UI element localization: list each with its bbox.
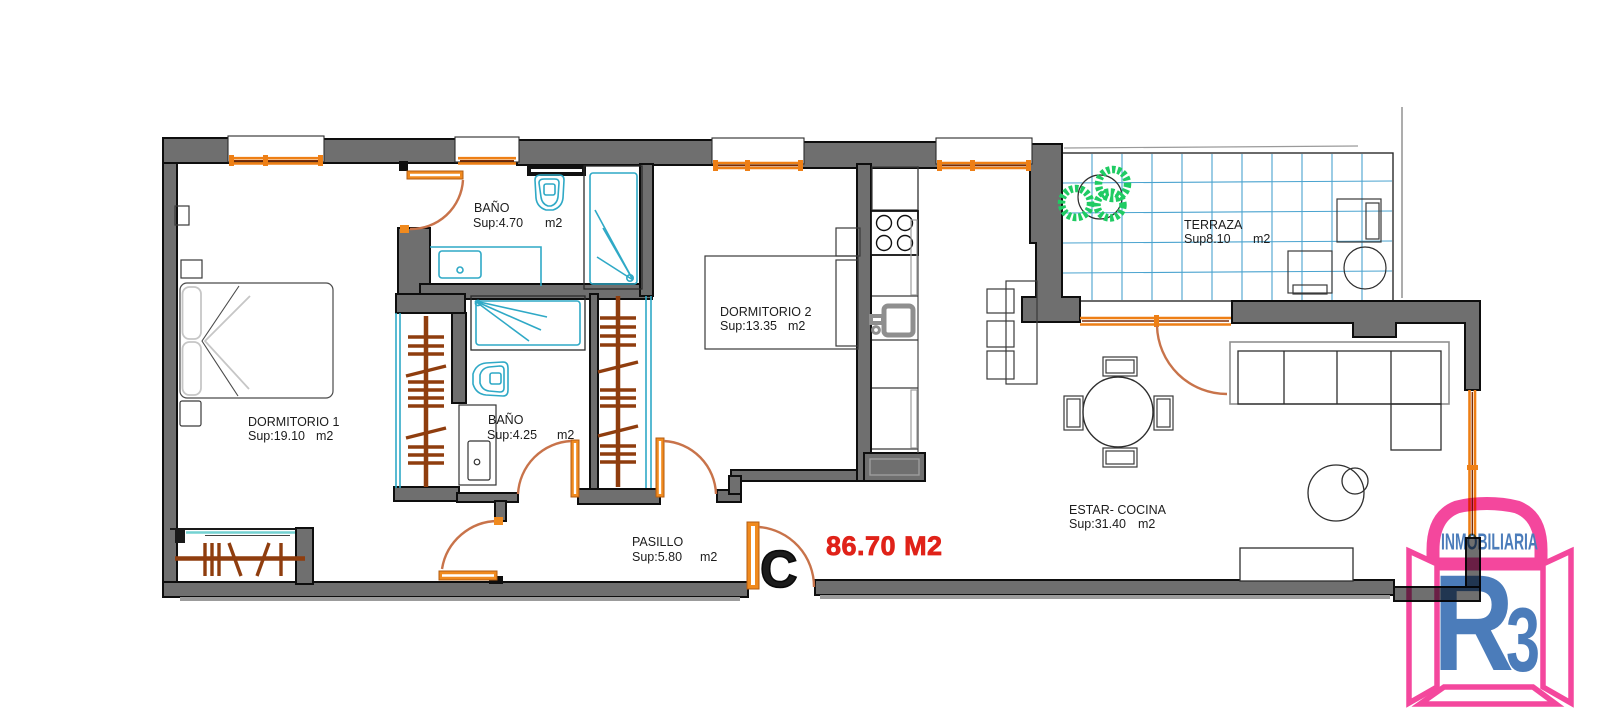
svg-text:DORMITORIO 1: DORMITORIO 1 <box>248 415 339 429</box>
svg-text:Sup:4.25: Sup:4.25 <box>487 428 537 442</box>
svg-text:86.70 M2: 86.70 M2 <box>826 531 943 561</box>
svg-text:m2: m2 <box>1138 517 1155 531</box>
svg-text:BAÑO: BAÑO <box>488 413 524 427</box>
svg-text:m2: m2 <box>557 428 574 442</box>
svg-text:C: C <box>760 541 798 599</box>
svg-text:m2: m2 <box>1253 232 1270 246</box>
svg-text:PASILLO: PASILLO <box>632 535 683 549</box>
svg-text:m2: m2 <box>545 216 562 230</box>
svg-text:Sup8.10: Sup8.10 <box>1184 232 1231 246</box>
svg-text:Sup:5.80: Sup:5.80 <box>632 550 682 564</box>
svg-text:3: 3 <box>1506 590 1540 691</box>
svg-text:Sup:13.35: Sup:13.35 <box>720 319 777 333</box>
svg-text:BAÑO: BAÑO <box>474 201 510 215</box>
svg-text:Sup:31.40: Sup:31.40 <box>1069 517 1126 531</box>
svg-text:TERRAZA: TERRAZA <box>1184 218 1243 232</box>
svg-text:m2: m2 <box>788 319 805 333</box>
svg-text:R: R <box>1433 546 1514 699</box>
svg-text:Sup:19.10: Sup:19.10 <box>248 429 305 443</box>
svg-text:DORMITORIO 2: DORMITORIO 2 <box>720 305 811 319</box>
svg-text:ESTAR- COCINA: ESTAR- COCINA <box>1069 503 1167 517</box>
svg-text:Sup:4.70: Sup:4.70 <box>473 216 523 230</box>
svg-text:m2: m2 <box>316 429 333 443</box>
svg-text:m2: m2 <box>700 550 717 564</box>
